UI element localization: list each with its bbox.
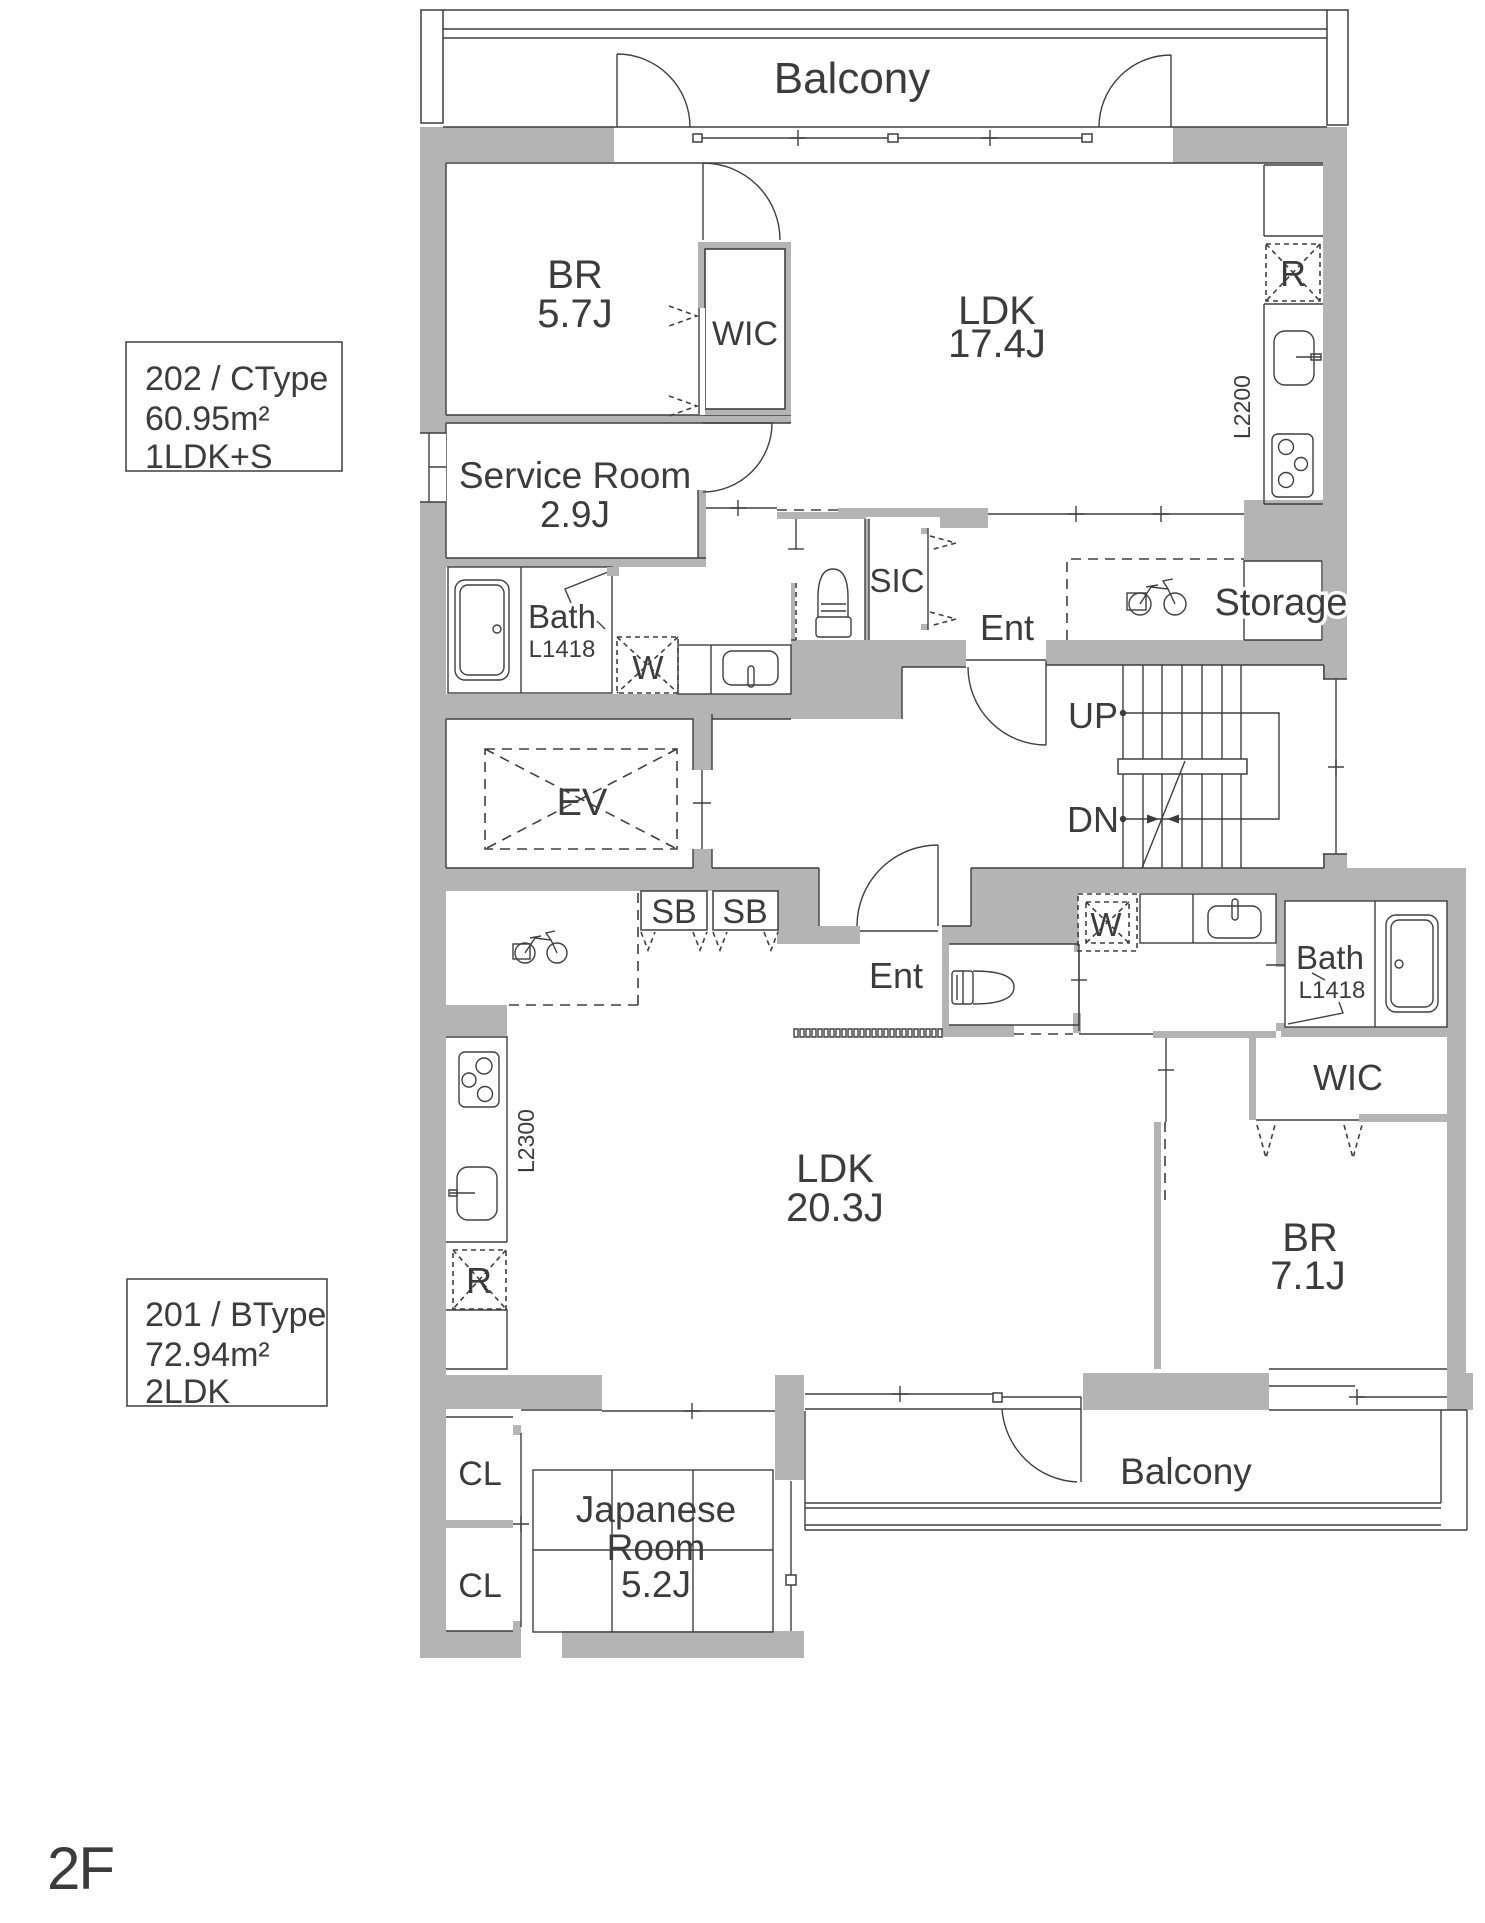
svg-text:WIC: WIC — [712, 315, 778, 353]
svg-text:DN: DN — [1067, 799, 1119, 840]
svg-text:Bath: Bath — [1296, 939, 1364, 976]
svg-text:BR: BR — [547, 253, 603, 297]
svg-text:202 / CType: 202 / CType — [145, 360, 328, 398]
svg-text:SB: SB — [651, 893, 696, 931]
svg-text:7.1J: 7.1J — [1270, 1254, 1346, 1298]
svg-text:Balcony: Balcony — [774, 54, 931, 103]
svg-text:20.3J: 20.3J — [786, 1186, 884, 1230]
svg-text:WIC: WIC — [1313, 1057, 1383, 1098]
svg-text:Ent: Ent — [980, 607, 1034, 648]
svg-text:L2200: L2200 — [1229, 375, 1255, 439]
svg-text:UP: UP — [1068, 695, 1118, 736]
svg-text:W: W — [1090, 906, 1122, 943]
svg-text:2.9J: 2.9J — [540, 494, 610, 535]
svg-text:CL: CL — [458, 1567, 501, 1605]
svg-text:R: R — [1280, 253, 1306, 294]
svg-text:SIC: SIC — [869, 562, 924, 599]
svg-text:LDK: LDK — [796, 1147, 874, 1191]
svg-text:1LDK+S: 1LDK+S — [145, 438, 273, 476]
svg-text:5.7J: 5.7J — [537, 292, 613, 336]
svg-text:Service Room: Service Room — [459, 455, 691, 496]
svg-text:Ent: Ent — [869, 955, 923, 996]
svg-text:Balcony: Balcony — [1120, 1451, 1252, 1492]
svg-text:Storage: Storage — [1214, 582, 1347, 624]
svg-text:2LDK: 2LDK — [145, 1373, 230, 1411]
svg-text:W: W — [632, 649, 664, 686]
svg-text:5.2J: 5.2J — [621, 1564, 691, 1605]
svg-text:L1418: L1418 — [1299, 977, 1366, 1004]
svg-text:72.94m²: 72.94m² — [145, 1336, 270, 1374]
svg-text:CL: CL — [458, 1455, 501, 1493]
svg-text:Bath: Bath — [528, 598, 596, 635]
svg-text:2F: 2F — [47, 1835, 113, 1902]
svg-text:201 / BType: 201 / BType — [145, 1296, 326, 1334]
svg-text:Room: Room — [607, 1527, 706, 1568]
svg-text:L2300: L2300 — [513, 1109, 539, 1173]
svg-text:Japanese: Japanese — [576, 1489, 736, 1530]
svg-text:EV: EV — [557, 782, 608, 824]
svg-text:SB: SB — [722, 893, 767, 931]
svg-text:60.95m²: 60.95m² — [145, 400, 270, 438]
svg-text:17.4J: 17.4J — [948, 322, 1046, 366]
svg-text:L1418: L1418 — [529, 636, 596, 663]
svg-text:R: R — [466, 1260, 492, 1301]
